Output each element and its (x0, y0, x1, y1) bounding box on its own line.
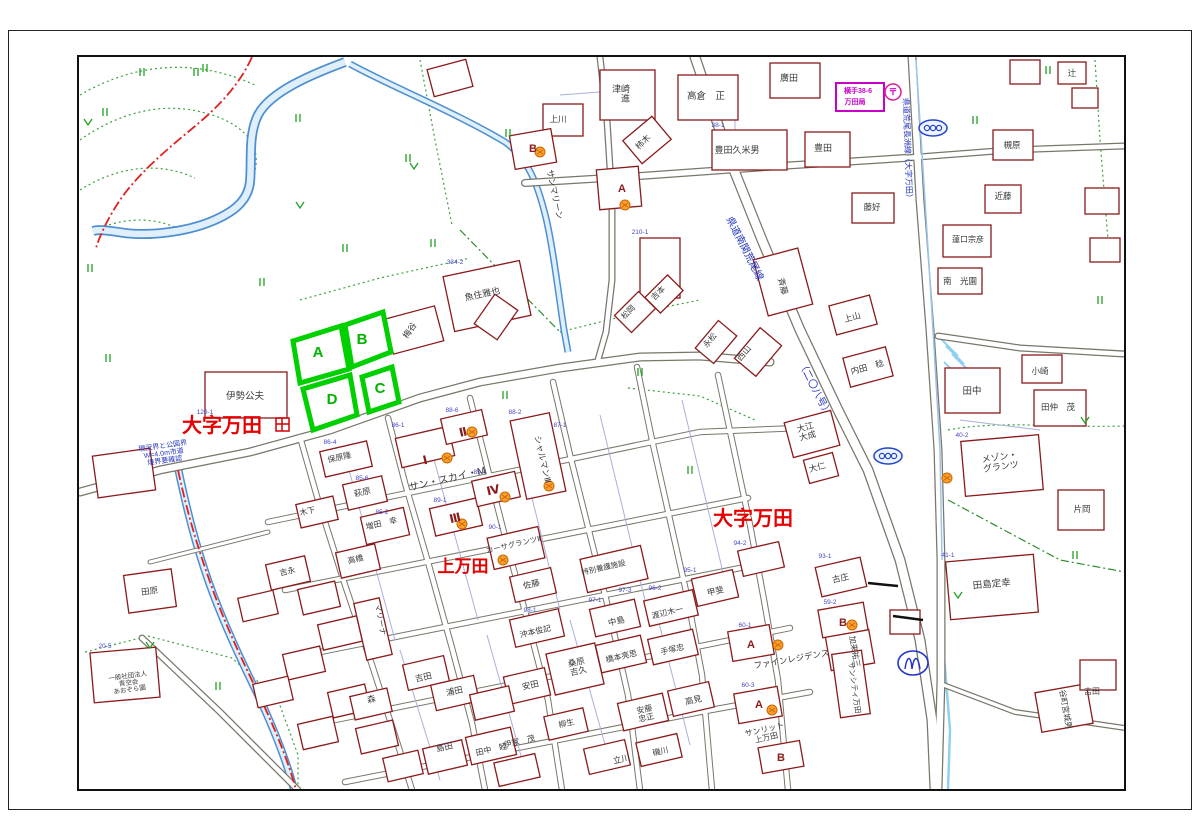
map-page: 86-486-188-685-685-289-189-488-290-187-1… (0, 0, 1200, 816)
sheet-border (8, 30, 1192, 810)
